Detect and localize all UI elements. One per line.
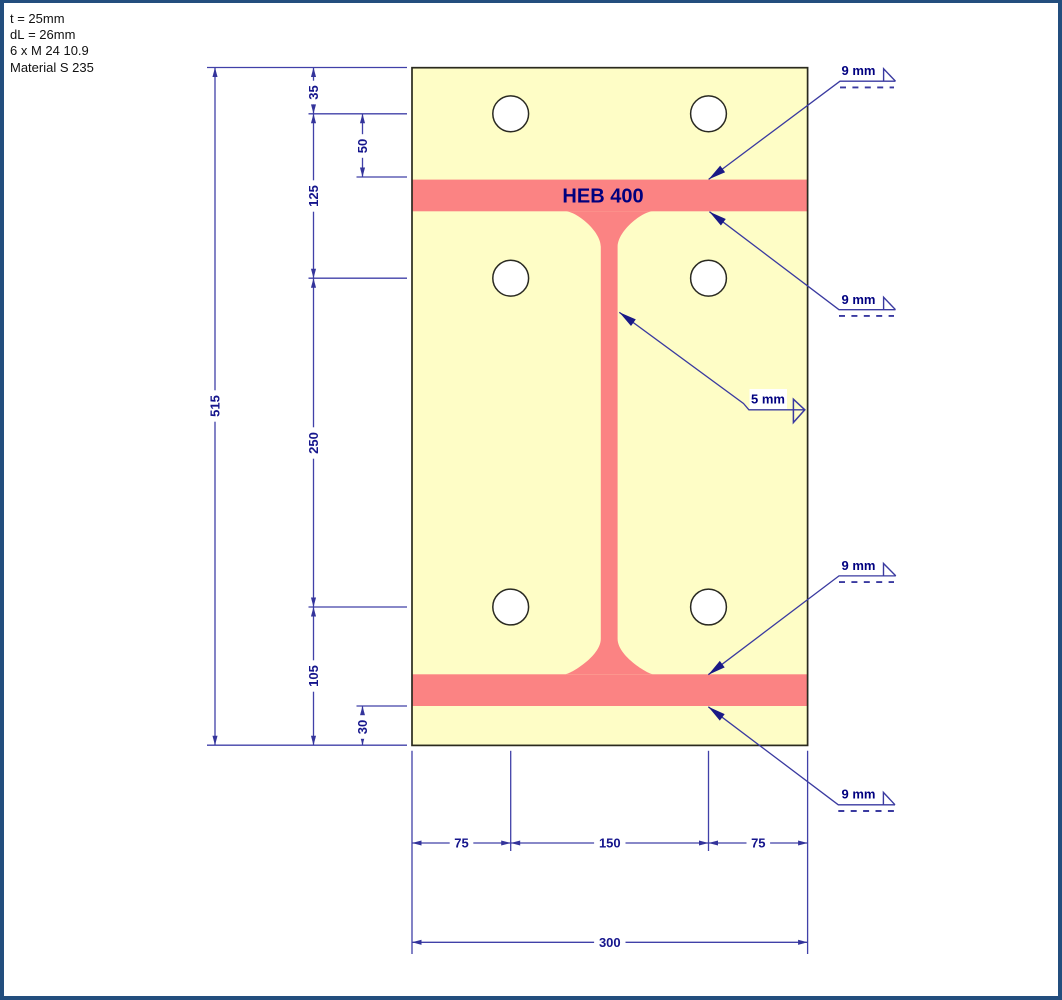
svg-text:5 mm: 5 mm [751,392,785,407]
svg-text:250: 250 [306,432,321,454]
svg-text:9 mm: 9 mm [842,558,876,573]
svg-text:50: 50 [355,139,370,153]
svg-text:35: 35 [306,85,321,99]
svg-text:75: 75 [454,836,468,851]
svg-text:75: 75 [751,836,765,851]
svg-text:9 mm: 9 mm [842,292,876,307]
svg-text:150: 150 [599,836,621,851]
svg-text:HEB 400: HEB 400 [562,186,643,208]
svg-text:9 mm: 9 mm [842,786,876,801]
svg-text:30: 30 [355,720,370,734]
svg-text:9 mm: 9 mm [842,63,876,78]
svg-text:515: 515 [208,395,223,417]
svg-text:105: 105 [306,665,321,687]
svg-text:125: 125 [306,185,321,207]
svg-text:300: 300 [599,935,621,950]
